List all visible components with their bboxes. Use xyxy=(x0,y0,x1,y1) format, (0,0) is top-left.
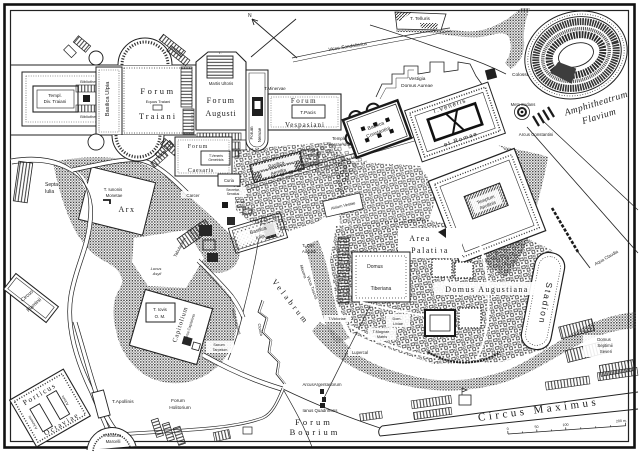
svg-text:T. Iunonis: T. Iunonis xyxy=(104,187,122,192)
svg-text:Forum: Forum xyxy=(295,417,333,427)
svg-text:Septa: Septa xyxy=(45,182,58,188)
svg-text:Lupercal: Lupercal xyxy=(352,350,368,355)
svg-text:200 m.: 200 m. xyxy=(616,419,627,424)
svg-text:Genetricis: Genetricis xyxy=(208,158,224,162)
svg-text:Matris: Matris xyxy=(377,335,387,339)
svg-text:Curia: Curia xyxy=(224,178,235,183)
svg-text:Domus: Domus xyxy=(367,264,383,270)
svg-text:Augusti: Augusti xyxy=(302,249,316,254)
svg-text:Domus Augustiana: Domus Augustiana xyxy=(445,285,529,294)
svg-text:T.Victoriae: T.Victoriae xyxy=(328,317,346,321)
svg-text:Arx: Arx xyxy=(119,205,136,214)
svg-text:T. Telluris: T. Telluris xyxy=(410,16,431,22)
svg-text:Area: Area xyxy=(409,234,431,243)
svg-text:Marcelli: Marcelli xyxy=(106,439,121,444)
svg-text:Domus: Domus xyxy=(597,337,611,342)
svg-text:Forum: Forum xyxy=(207,96,236,105)
svg-text:Traiani: Traiani xyxy=(139,111,177,121)
svg-text:T.Minervae: T.Minervae xyxy=(264,86,286,91)
svg-text:Tarpeium: Tarpeium xyxy=(213,348,228,352)
svg-text:T.: T. xyxy=(218,50,221,55)
svg-text:Iulia: Iulia xyxy=(45,189,54,195)
svg-text:Forum: Forum xyxy=(171,398,185,404)
svg-text:Severi: Severi xyxy=(236,205,247,209)
svg-text:Forum: Forum xyxy=(291,97,317,105)
svg-text:Arcus Constantini: Arcus Constantini xyxy=(519,132,553,137)
svg-text:Meta Sudans: Meta Sudans xyxy=(511,102,536,107)
svg-text:Monetae: Monetae xyxy=(106,193,123,198)
svg-text:T.Apollinis: T.Apollinis xyxy=(112,399,134,405)
svg-text:Augusti: Augusti xyxy=(206,109,237,118)
svg-text:100: 100 xyxy=(562,423,568,427)
svg-text:0: 0 xyxy=(507,427,509,431)
svg-text:Holitorium: Holitorium xyxy=(169,405,191,411)
svg-text:N: N xyxy=(248,13,252,19)
svg-text:Templ.: Templ. xyxy=(48,93,62,98)
svg-text:Theatrum: Theatrum xyxy=(103,433,122,438)
svg-text:Carcer: Carcer xyxy=(186,193,200,198)
svg-text:Forum: Forum xyxy=(140,86,175,96)
svg-text:Liviae: Liviae xyxy=(393,322,403,326)
svg-text:Nervae: Nervae xyxy=(257,127,262,142)
svg-text:Forum: Forum xyxy=(188,144,208,150)
svg-text:Equus Traiani: Equus Traiani xyxy=(146,99,171,104)
svg-text:Basilica Ulpia: Basilica Ulpia xyxy=(105,81,111,117)
svg-text:T.Magnae: T.Magnae xyxy=(373,330,390,334)
svg-text:Arcus: Arcus xyxy=(235,200,245,204)
svg-text:Asyli: Asyli xyxy=(152,271,162,276)
svg-text:Martis Ultoris: Martis Ultoris xyxy=(209,81,233,86)
svg-text:T. Divi: T. Divi xyxy=(302,243,313,248)
svg-text:T. Iovis: T. Iovis xyxy=(153,307,167,312)
svg-text:Tiberiana: Tiberiana xyxy=(371,286,392,292)
svg-text:ArcusArgentariorum: ArcusArgentariorum xyxy=(302,382,341,387)
svg-text:Caesaris: Caesaris xyxy=(188,168,214,174)
svg-text:T.Pacis: T.Pacis xyxy=(300,110,316,116)
svg-text:Domus Aureae: Domus Aureae xyxy=(401,83,433,89)
svg-text:Septimii: Septimii xyxy=(597,343,612,348)
svg-text:Saxum: Saxum xyxy=(213,343,224,347)
svg-text:Forum: Forum xyxy=(249,126,254,139)
svg-text:Ianus Quadrifrons: Ianus Quadrifrons xyxy=(303,408,339,413)
svg-text:Vespasiani: Vespasiani xyxy=(285,121,325,129)
svg-text:50: 50 xyxy=(534,425,538,429)
svg-text:Vestigia: Vestigia xyxy=(409,76,426,82)
svg-text:Palatina: Palatina xyxy=(411,246,449,255)
svg-text:Faustinae: Faustinae xyxy=(303,161,317,165)
svg-text:Dom.: Dom. xyxy=(392,317,401,321)
svg-text:Senatus: Senatus xyxy=(227,192,240,196)
svg-text:Boarium: Boarium xyxy=(290,427,341,437)
svg-text:O. M.: O. M. xyxy=(155,314,166,319)
svg-text:Div. Traiani: Div. Traiani xyxy=(44,99,67,104)
svg-text:Severi: Severi xyxy=(600,349,612,354)
